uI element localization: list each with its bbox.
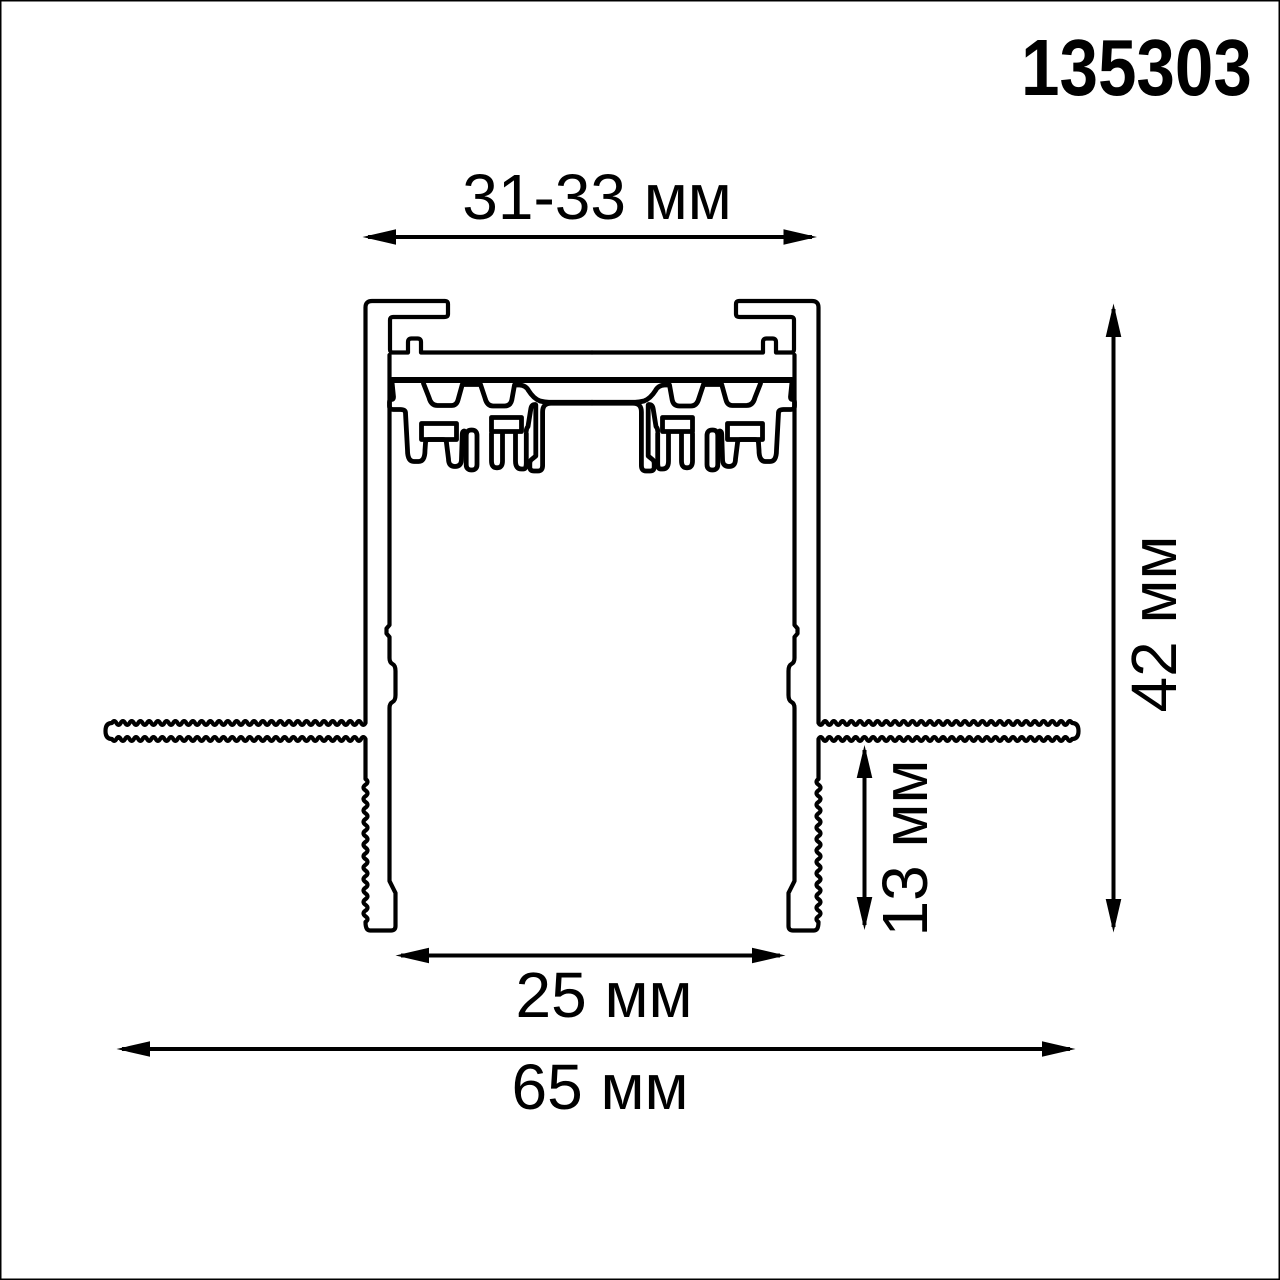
svg-text:65 мм: 65 мм: [512, 1051, 689, 1123]
svg-text:25 мм: 25 мм: [516, 959, 693, 1031]
svg-text:31-33 мм: 31-33 мм: [462, 161, 731, 233]
svg-text:135303: 135303: [1021, 22, 1252, 112]
svg-text:42 мм: 42 мм: [1118, 536, 1190, 713]
svg-text:13 мм: 13 мм: [869, 760, 941, 937]
